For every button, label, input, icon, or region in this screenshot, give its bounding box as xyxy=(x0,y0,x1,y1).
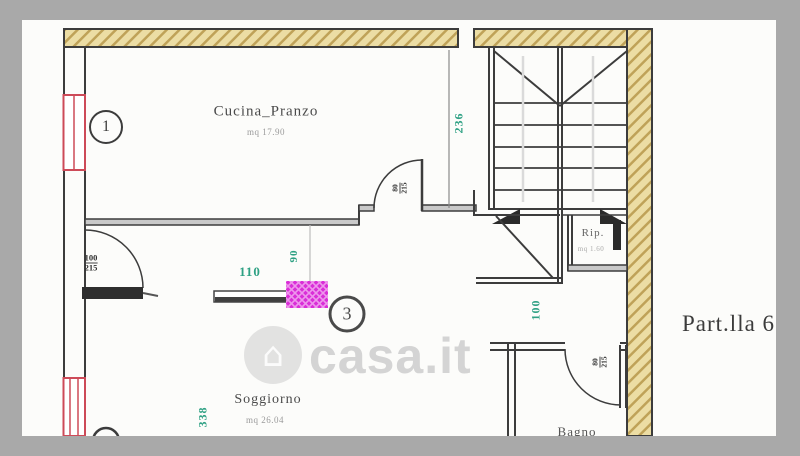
room-label-cucina: Cucina_Pranzo xyxy=(214,104,319,121)
exterior-wall-right xyxy=(627,29,652,436)
room-label-soggiorno: Soggiorno xyxy=(234,392,301,408)
marker-circle-2-partial xyxy=(93,428,119,436)
door-size-living: 100 215 xyxy=(85,254,98,273)
floorplan-sheet: Cucina_Pranzo mq 17.90 Soggiorno mq 26.0… xyxy=(22,20,776,436)
dimension-100: 100 xyxy=(529,300,544,321)
door-size-bathroom: 80 215 xyxy=(592,356,609,367)
room-area-cucina: mq 17.90 xyxy=(247,127,285,137)
dimension-90: 90 xyxy=(288,250,300,263)
dimension-338: 338 xyxy=(196,407,211,428)
bagno-door xyxy=(565,345,626,408)
dimension-110: 110 xyxy=(239,264,261,280)
window-upper-left xyxy=(64,95,86,170)
room-label-rip: Rip. xyxy=(582,227,605,239)
magenta-highlight xyxy=(286,281,328,308)
room-area-rip: mq 1.60 xyxy=(578,245,604,253)
floorplan-drawing xyxy=(22,20,776,436)
floorplan-screenshot: Cucina_Pranzo mq 17.90 Soggiorno mq 26.0… xyxy=(0,0,800,456)
marker-circle-3: 3 xyxy=(329,296,366,333)
room-label-bagno: Bagno xyxy=(558,424,597,436)
door-bathroom-height: 215 xyxy=(601,356,609,367)
door-kitchen-height: 215 xyxy=(401,182,409,193)
parcel-label: Part.lla 6 xyxy=(682,311,775,337)
staircase xyxy=(489,48,627,283)
window-lower-left xyxy=(64,378,86,436)
marker-3-number: 3 xyxy=(343,304,352,325)
stair-landing xyxy=(474,190,563,283)
dimension-236: 236 xyxy=(452,113,467,134)
door-living-height: 215 xyxy=(85,264,98,273)
interior-wall-kitchen xyxy=(85,205,476,225)
room-area-soggiorno: mq 26.04 xyxy=(246,415,284,425)
door-size-kitchen: 80 215 xyxy=(392,182,409,193)
marker-1-number: 1 xyxy=(102,118,110,136)
half-wall xyxy=(214,291,287,302)
marker-circle-1: 1 xyxy=(89,110,123,144)
exterior-wall-top xyxy=(64,29,652,47)
